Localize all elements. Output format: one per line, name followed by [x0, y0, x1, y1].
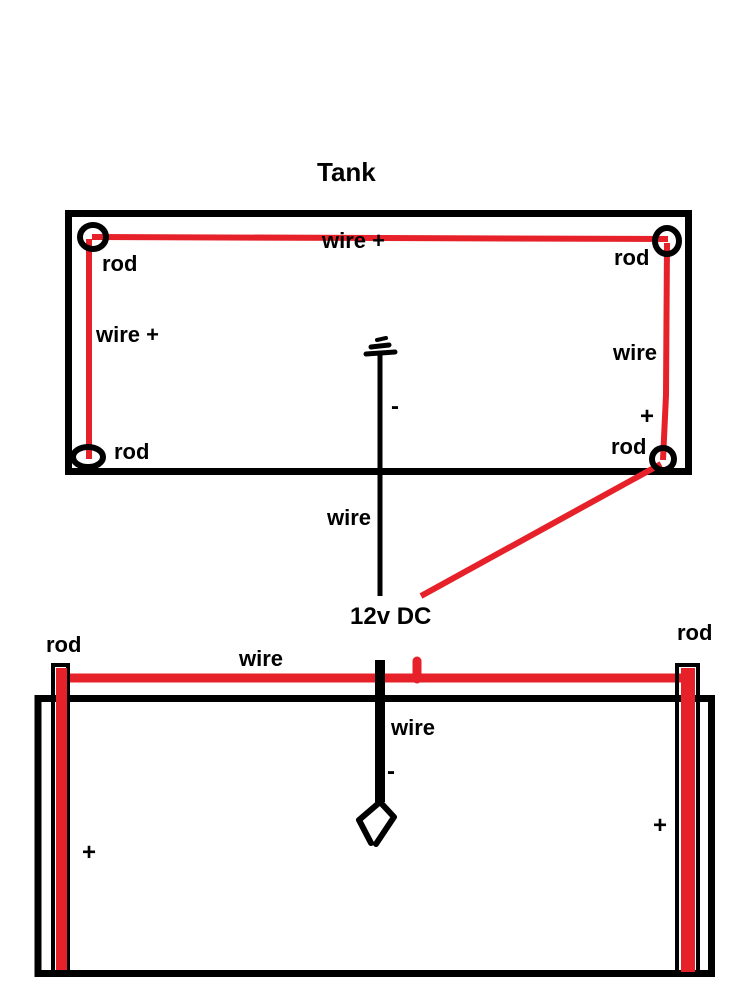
rod-top-left-label: rod	[102, 252, 137, 275]
top-wire-label-side-view: wire	[239, 647, 283, 670]
rod-bottom-right-label: rod	[611, 435, 646, 458]
ground-symbol-bar-large	[366, 352, 395, 354]
rod-left-side-label: rod	[46, 633, 81, 656]
negative-polarity-top-view: -	[391, 394, 399, 419]
rod-right-side-fill	[681, 668, 695, 972]
center-wire-label-side-view: wire	[391, 716, 435, 739]
electrolysis-diagram: Tank wire + rod wire + rod wire + rod ro…	[0, 0, 744, 992]
right-wire-polarity: +	[640, 404, 654, 429]
right-rod-polarity: +	[653, 813, 667, 838]
rod-left-side-fill	[56, 668, 67, 970]
power-supply-label: 12v DC	[350, 604, 431, 629]
ground-symbol-bar-medium	[371, 345, 389, 347]
negative-polarity-side-view: -	[387, 759, 395, 784]
diagram-title: Tank	[317, 159, 376, 186]
tank-side-view-outline	[38, 699, 712, 974]
ground-symbol-bar-small	[377, 338, 386, 340]
positive-wire-right	[663, 243, 667, 460]
left-wire-label: wire +	[96, 323, 159, 346]
rod-top-right-label: rod	[614, 246, 649, 269]
positive-wire-to-supply	[421, 464, 661, 596]
center-wire-label-top-view: wire	[327, 506, 371, 529]
right-wire-label: wire	[613, 341, 657, 364]
left-rod-polarity: +	[82, 840, 96, 865]
rod-right-side-label: rod	[677, 621, 712, 644]
top-wire-label: wire +	[322, 229, 385, 252]
rod-bottom-left-label: rod	[114, 440, 149, 463]
diagram-canvas	[0, 0, 744, 992]
negative-clip-shape	[359, 802, 394, 844]
